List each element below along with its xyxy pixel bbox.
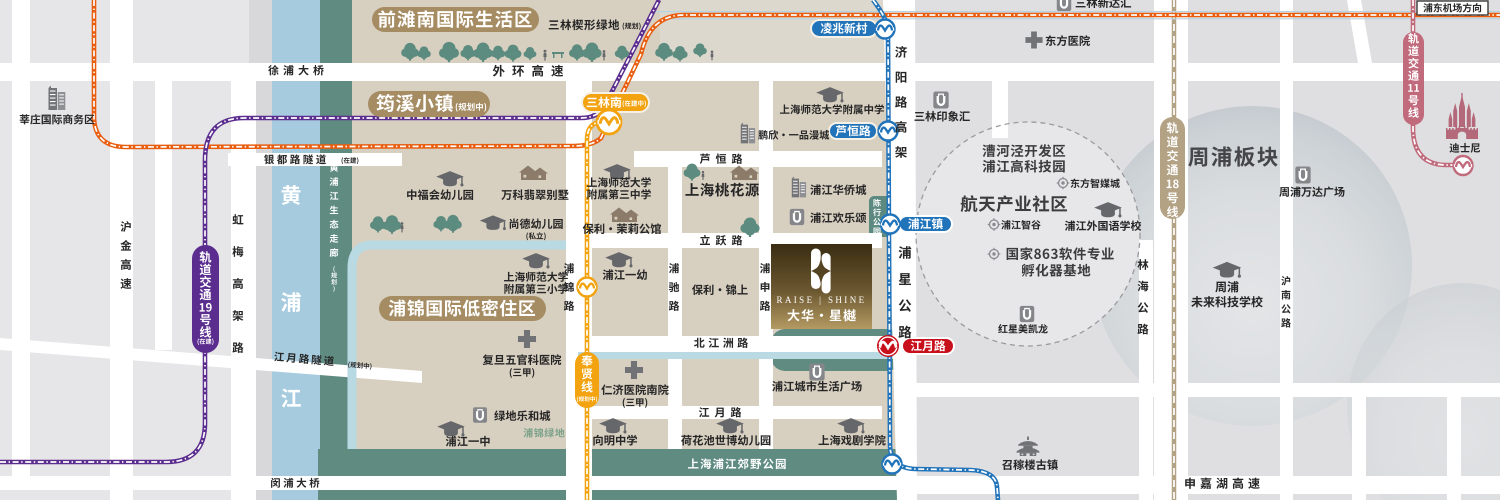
svg-text:RAISE | SHINE: RAISE | SHINE xyxy=(776,295,866,305)
